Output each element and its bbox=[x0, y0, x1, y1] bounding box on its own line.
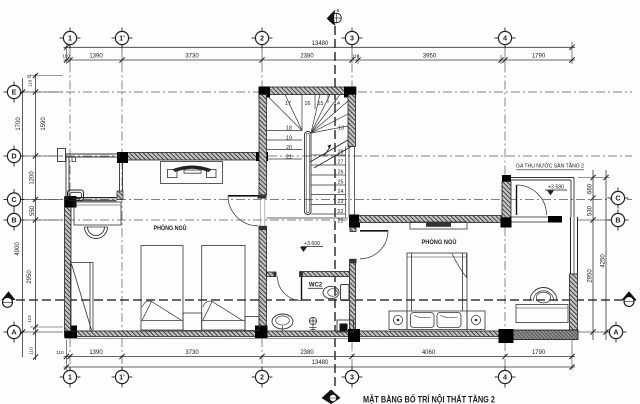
svg-text:20: 20 bbox=[286, 145, 292, 151]
svg-text:D: D bbox=[11, 152, 16, 161]
svg-text:2950: 2950 bbox=[27, 270, 33, 284]
svg-text:530: 530 bbox=[588, 205, 594, 216]
svg-text:2380: 2380 bbox=[300, 54, 314, 60]
svg-text:sl: sl bbox=[27, 74, 31, 80]
svg-text:110: 110 bbox=[352, 54, 360, 59]
svg-text:C: C bbox=[615, 194, 620, 203]
svg-text:660: 660 bbox=[588, 183, 594, 194]
svg-text:C: C bbox=[11, 195, 16, 204]
svg-text:21: 21 bbox=[338, 219, 344, 225]
svg-text:1390: 1390 bbox=[89, 350, 103, 356]
svg-text:B: B bbox=[336, 8, 339, 13]
svg-text:1390: 1390 bbox=[89, 54, 103, 60]
svg-text:27: 27 bbox=[338, 160, 344, 166]
svg-text:2950: 2950 bbox=[588, 269, 594, 283]
svg-text:1790: 1790 bbox=[532, 54, 546, 60]
svg-text:1790: 1790 bbox=[532, 350, 546, 356]
svg-text:4: 4 bbox=[503, 373, 507, 382]
svg-text:24: 24 bbox=[338, 189, 344, 195]
svg-text:1590: 1590 bbox=[41, 117, 47, 131]
svg-text:110: 110 bbox=[29, 347, 34, 355]
svg-text:A: A bbox=[613, 328, 618, 337]
svg-text:1': 1' bbox=[119, 373, 125, 382]
svg-text:15: 15 bbox=[318, 101, 324, 107]
svg-text:2: 2 bbox=[260, 373, 264, 382]
svg-text:4250: 4250 bbox=[601, 254, 607, 268]
svg-text:2: 2 bbox=[260, 34, 264, 43]
svg-text:PHÒNG NGỦ: PHÒNG NGỦ bbox=[422, 238, 457, 246]
svg-text:1': 1' bbox=[119, 34, 125, 43]
svg-text:13480: 13480 bbox=[312, 41, 329, 47]
svg-text:1700: 1700 bbox=[16, 117, 22, 131]
svg-text:A: A bbox=[11, 328, 16, 337]
svg-text:B: B bbox=[615, 216, 620, 225]
svg-text:21: 21 bbox=[286, 154, 292, 160]
svg-text:+3.580: +3.580 bbox=[548, 185, 564, 191]
svg-text:110: 110 bbox=[27, 315, 32, 323]
svg-text:22: 22 bbox=[338, 209, 344, 215]
svg-text:3730: 3730 bbox=[185, 350, 199, 356]
svg-text:26: 26 bbox=[338, 170, 344, 176]
svg-text:28: 28 bbox=[338, 150, 344, 156]
svg-text:16: 16 bbox=[305, 101, 311, 107]
svg-text:25: 25 bbox=[338, 180, 344, 186]
svg-text:B: B bbox=[11, 216, 16, 225]
svg-text:GA THU NƯỚC SÂN TẦNG 2: GA THU NƯỚC SÂN TẦNG 2 bbox=[516, 163, 584, 170]
svg-text:PHÒNG NGỦ: PHÒNG NGỦ bbox=[154, 224, 187, 232]
svg-text:4900: 4900 bbox=[15, 242, 21, 256]
svg-text:3: 3 bbox=[350, 373, 354, 382]
svg-text:13: 13 bbox=[338, 126, 344, 132]
svg-text:110: 110 bbox=[28, 79, 33, 87]
svg-text:4: 4 bbox=[503, 34, 507, 43]
svg-text:1200: 1200 bbox=[30, 171, 36, 185]
svg-text:1: 1 bbox=[68, 373, 72, 382]
svg-text:17: 17 bbox=[285, 101, 291, 107]
svg-text:13480: 13480 bbox=[312, 360, 329, 366]
svg-text:2380: 2380 bbox=[300, 350, 314, 356]
svg-text:3730: 3730 bbox=[185, 54, 199, 60]
svg-text:4060: 4060 bbox=[422, 350, 436, 356]
svg-text:E: E bbox=[12, 88, 17, 97]
svg-text:+3.600: +3.600 bbox=[304, 241, 320, 247]
svg-text:1: 1 bbox=[68, 34, 72, 43]
svg-text:MẶT BẰNG BỐ TRÍ NỘI THẤT TẦNG: MẶT BẰNG BỐ TRÍ NỘI THẤT TẦNG 2 bbox=[363, 394, 495, 404]
svg-text:19: 19 bbox=[286, 135, 292, 141]
svg-text:23: 23 bbox=[338, 199, 344, 205]
svg-text:550: 550 bbox=[30, 205, 36, 216]
svg-text:3950: 3950 bbox=[423, 54, 437, 60]
svg-text:14: 14 bbox=[334, 101, 340, 107]
svg-text:3: 3 bbox=[350, 34, 354, 43]
svg-text:110: 110 bbox=[56, 350, 64, 355]
svg-text:110: 110 bbox=[62, 54, 70, 59]
svg-text:WC2: WC2 bbox=[309, 283, 323, 289]
svg-text:18: 18 bbox=[286, 126, 292, 132]
